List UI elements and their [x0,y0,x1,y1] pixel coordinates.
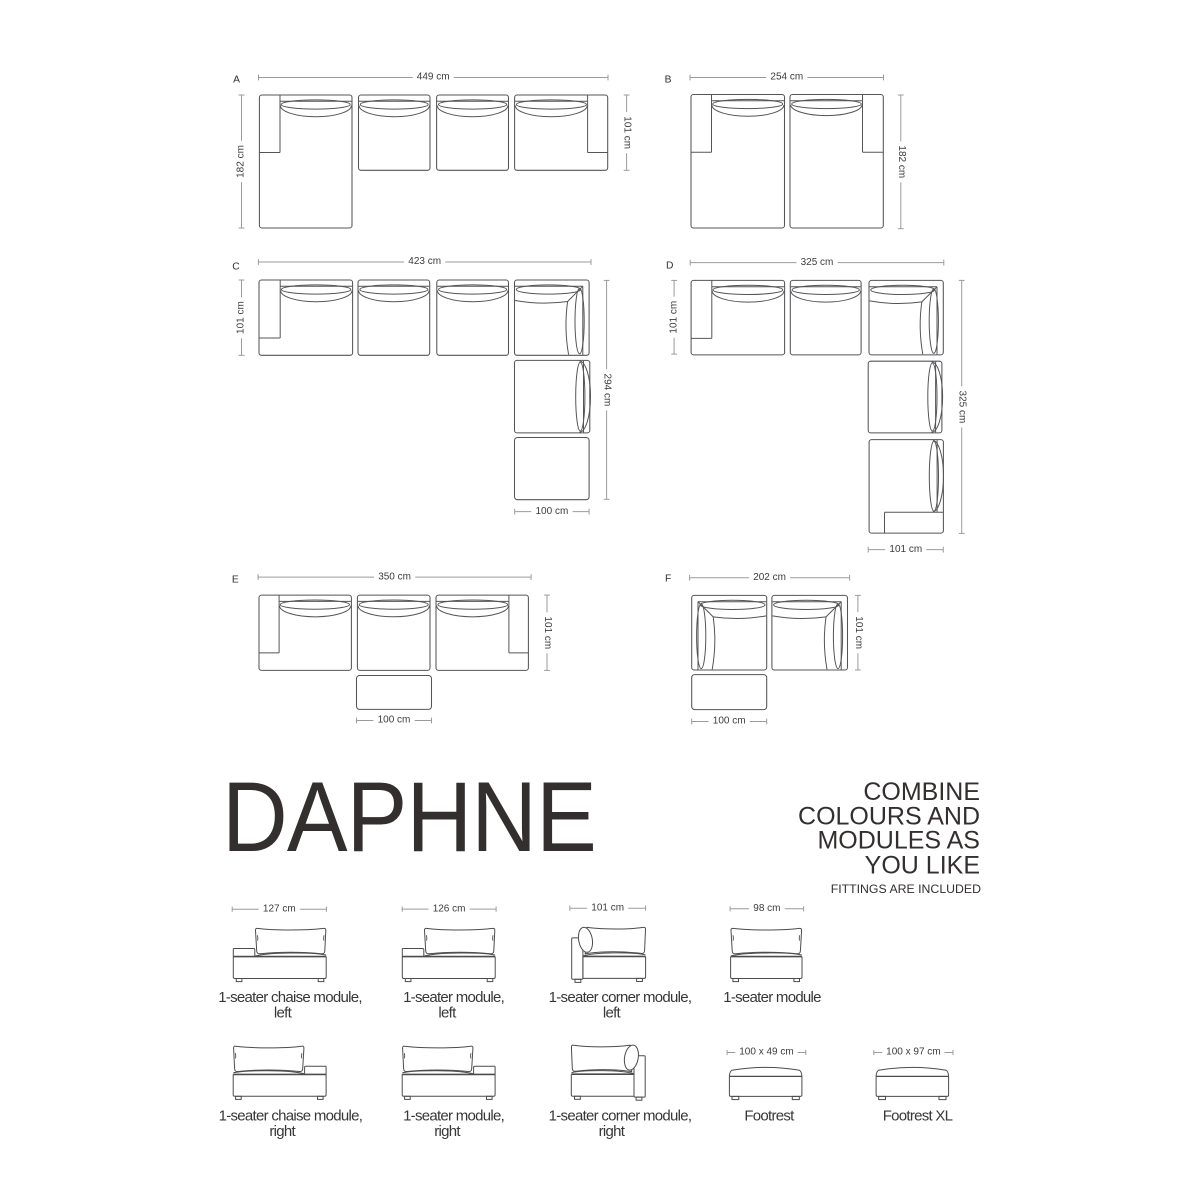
svg-text:294 cm: 294 cm [602,374,613,407]
svg-text:right: right [269,1123,296,1140]
svg-text:Footrest XL: Footrest XL [883,1108,953,1125]
svg-text:right: right [599,1123,626,1140]
svg-text:423 cm: 423 cm [408,256,441,267]
svg-text:100 cm: 100 cm [378,715,411,726]
svg-text:98 cm: 98 cm [753,903,780,914]
svg-text:C: C [232,262,240,273]
svg-text:DAPHNE: DAPHNE [222,762,596,873]
svg-text:right: right [434,1123,461,1140]
svg-text:100 x 49 cm: 100 x 49 cm [739,1047,793,1058]
svg-text:101 cm: 101 cm [236,301,247,334]
svg-text:126 cm: 126 cm [433,903,466,914]
svg-text:101 cm: 101 cm [889,544,922,555]
svg-text:1-seater module: 1-seater module [723,989,821,1006]
svg-text:182 cm: 182 cm [236,145,247,178]
svg-text:101 cm: 101 cm [591,902,624,913]
svg-text:left: left [274,1004,293,1021]
svg-text:449 cm: 449 cm [417,72,450,83]
svg-text:182 cm: 182 cm [896,145,907,178]
svg-text:254 cm: 254 cm [770,72,803,83]
svg-text:100 x 97 cm: 100 x 97 cm [886,1047,940,1058]
svg-text:B: B [665,75,672,86]
svg-text:left: left [438,1004,457,1021]
svg-text:YOU LIKE: YOU LIKE [865,851,980,879]
svg-text:left: left [603,1004,622,1021]
svg-text:350 cm: 350 cm [378,571,411,582]
svg-text:101 cm: 101 cm [668,301,679,334]
svg-text:101 cm: 101 cm [542,616,553,649]
svg-text:F: F [665,574,671,585]
svg-text:127 cm: 127 cm [263,903,296,914]
svg-text:325 cm: 325 cm [957,391,968,424]
svg-text:FITTINGS ARE INCLUDED: FITTINGS ARE INCLUDED [831,882,981,896]
svg-text:D: D [666,261,673,272]
svg-text:202 cm: 202 cm [753,572,786,583]
svg-text:A: A [233,75,240,86]
svg-text:101 cm: 101 cm [622,116,633,149]
svg-text:100 cm: 100 cm [536,506,569,517]
svg-text:325 cm: 325 cm [801,257,834,268]
svg-text:Footrest: Footrest [744,1108,795,1125]
svg-text:1-seater corner module,: 1-seater corner module, [549,989,692,1006]
svg-text:101 cm: 101 cm [853,616,864,649]
svg-text:E: E [232,574,239,585]
svg-text:100 cm: 100 cm [713,716,746,727]
